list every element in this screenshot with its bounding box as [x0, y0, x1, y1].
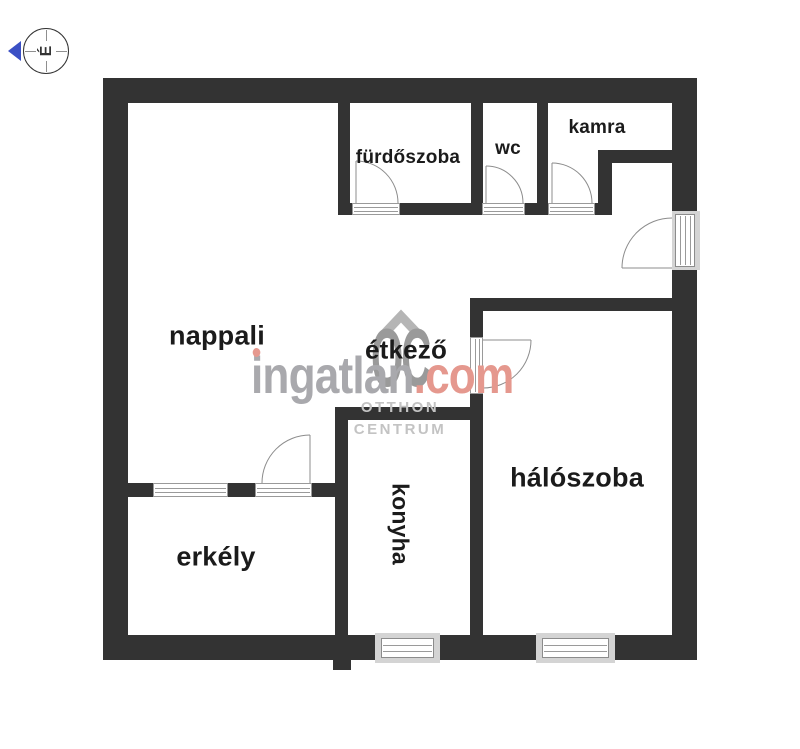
room-label-haloszoba: hálószoba — [510, 463, 644, 494]
room-label-kamra: kamra — [569, 117, 626, 139]
logo-org-line2: CENTRUM — [354, 421, 447, 438]
logo-org-line1: OTTHON — [361, 399, 439, 416]
door-arc-entry — [622, 218, 672, 268]
floor-plan: É — [0, 0, 800, 749]
room-label-konyha: konyha — [387, 483, 414, 565]
room-label-furdoszoba: fürdőszoba — [356, 147, 460, 169]
door-arc-wc — [486, 166, 523, 203]
room-label-nappali: nappali — [169, 321, 265, 352]
room-label-etkezo: étkező — [365, 335, 447, 366]
room-label-wc: wc — [495, 138, 521, 160]
door-arc-kamra — [552, 163, 592, 203]
door-arc-balcony — [262, 435, 310, 483]
room-label-erkely: erkély — [176, 542, 255, 573]
